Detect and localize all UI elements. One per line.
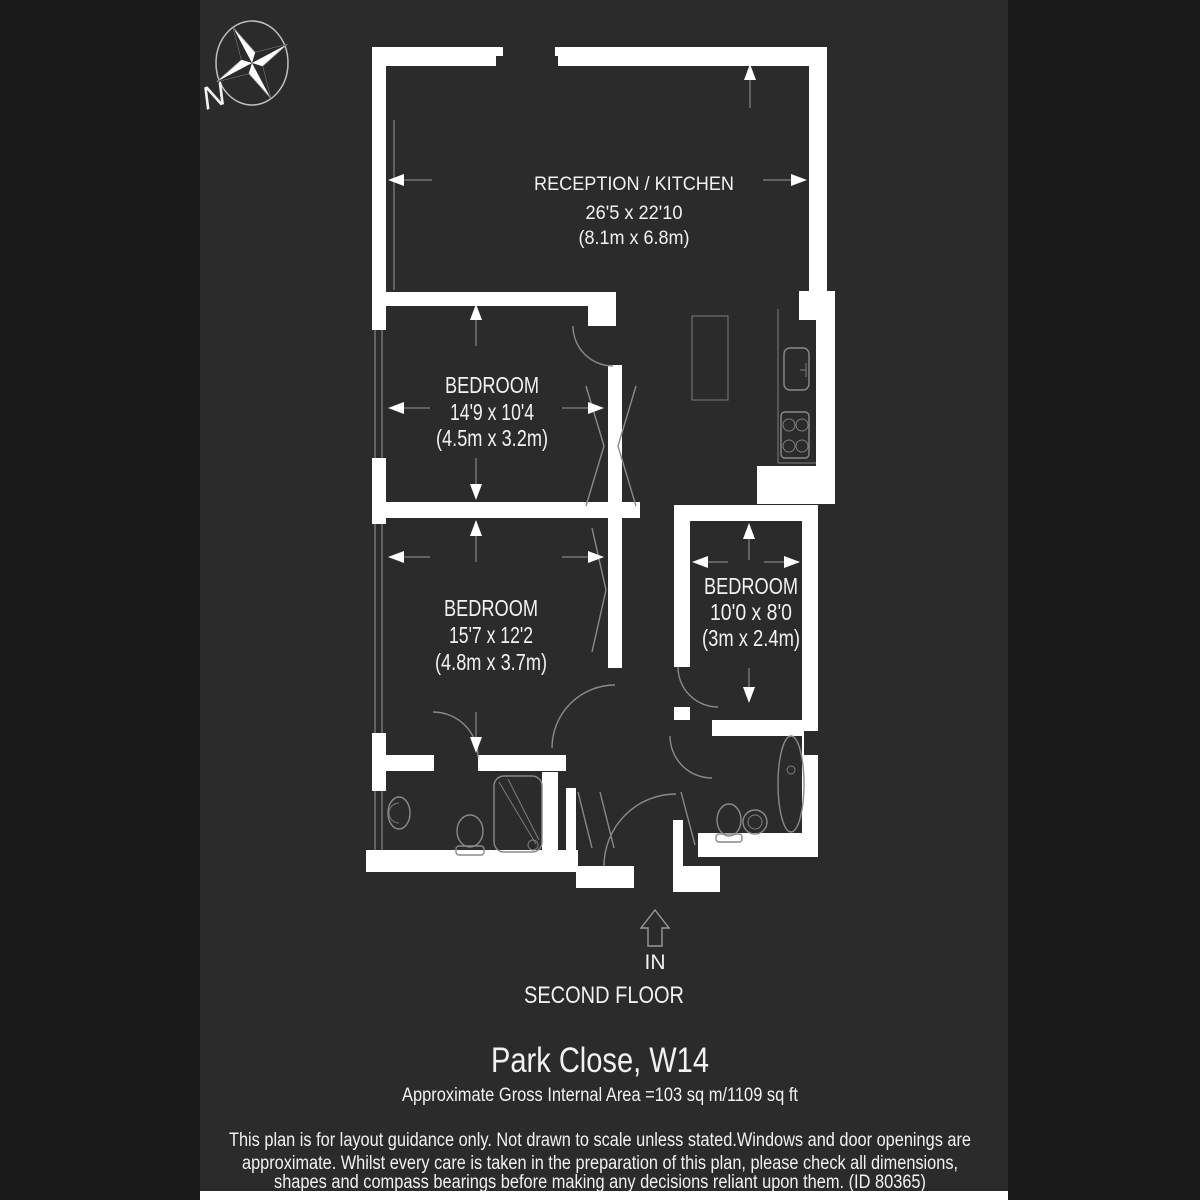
- wall-entry-stub: [673, 820, 683, 868]
- wall-mid-step: [588, 292, 616, 326]
- page-title: Park Close, W14: [491, 1041, 709, 1080]
- wall-bedroom-divider: [372, 502, 640, 518]
- wall-bed2-bottom-right: [478, 755, 566, 771]
- bedroom3-dims-metric: (3m x 2.4m): [702, 625, 800, 651]
- chimney-notch-lower: [496, 56, 558, 66]
- wall-right-upper: [809, 47, 827, 309]
- wall-left-reception: [372, 47, 386, 306]
- room-label-bedroom-2: BEDROOM 15'7 x 12'2 (4.8m x 3.7m): [435, 595, 547, 675]
- floorplan-page: N: [0, 0, 1200, 1200]
- wall-bedroom3-left-stub: [674, 707, 690, 720]
- reception-dims-imperial: 26'5 x 22'10: [586, 203, 683, 224]
- wall-bedroom3-left: [674, 505, 690, 667]
- wall-bathleft-right: [542, 772, 558, 860]
- bedroom3-dims-imperial: 10'0 x 8'0: [710, 599, 792, 625]
- wall-corridor-lower: [608, 518, 622, 668]
- wall-bathright-top: [712, 720, 818, 736]
- wall-kitchen-bottom: [757, 466, 835, 504]
- wall-right-kitchen: [816, 291, 835, 483]
- disclaimer-line-3: shapes and compass bearings before makin…: [274, 1172, 926, 1193]
- disclaimer-line-2: approximate. Whilst every care is taken …: [242, 1153, 958, 1174]
- entrance-label: IN: [645, 951, 666, 974]
- bedroom1-dims-metric: (4.5m x 3.2m): [436, 425, 548, 451]
- wall-bed2-bottom-left: [372, 755, 434, 771]
- reception-dims-metric: (8.1m x 6.8m): [579, 228, 690, 249]
- wall-corridor-upper: [608, 365, 622, 502]
- floorplan-canvas: N: [0, 0, 1200, 1200]
- bedroom2-dims-imperial: 15'7 x 12'2: [449, 622, 533, 648]
- floor-label: SECOND FLOOR: [524, 982, 684, 1009]
- room-label-bedroom-3: BEDROOM 10'0 x 8'0 (3m x 2.4m): [702, 573, 800, 651]
- wall-entry-bottom-right: [673, 866, 720, 892]
- bedroom1-dims-imperial: 14'9 x 10'4: [450, 399, 534, 425]
- disclaimer-line-1: This plan is for layout guidance only. N…: [229, 1130, 971, 1151]
- wall-bedroom3-right: [802, 505, 818, 705]
- wall-top: [375, 47, 827, 66]
- room-label-bedroom-1: BEDROOM 14'9 x 10'4 (4.5m x 3.2m): [436, 372, 548, 451]
- area-line: Approximate Gross Internal Area =103 sq …: [402, 1085, 799, 1106]
- bathroom-shelf-notch: [804, 731, 824, 755]
- bedroom2-name: BEDROOM: [444, 595, 538, 621]
- wall-mid-reception: [372, 292, 596, 306]
- reception-name: RECEPTION / KITCHEN: [534, 174, 734, 195]
- chimney-notch-upper: [503, 47, 555, 56]
- wall-bedroom3-top: [674, 505, 818, 521]
- bedroom1-name: BEDROOM: [445, 372, 539, 398]
- wall-entry-bottom-left: [576, 866, 634, 888]
- bedroom2-dims-metric: (4.8m x 3.7m): [435, 649, 547, 675]
- wall-closet-stub: [566, 788, 576, 852]
- bedroom3-name: BEDROOM: [704, 573, 798, 599]
